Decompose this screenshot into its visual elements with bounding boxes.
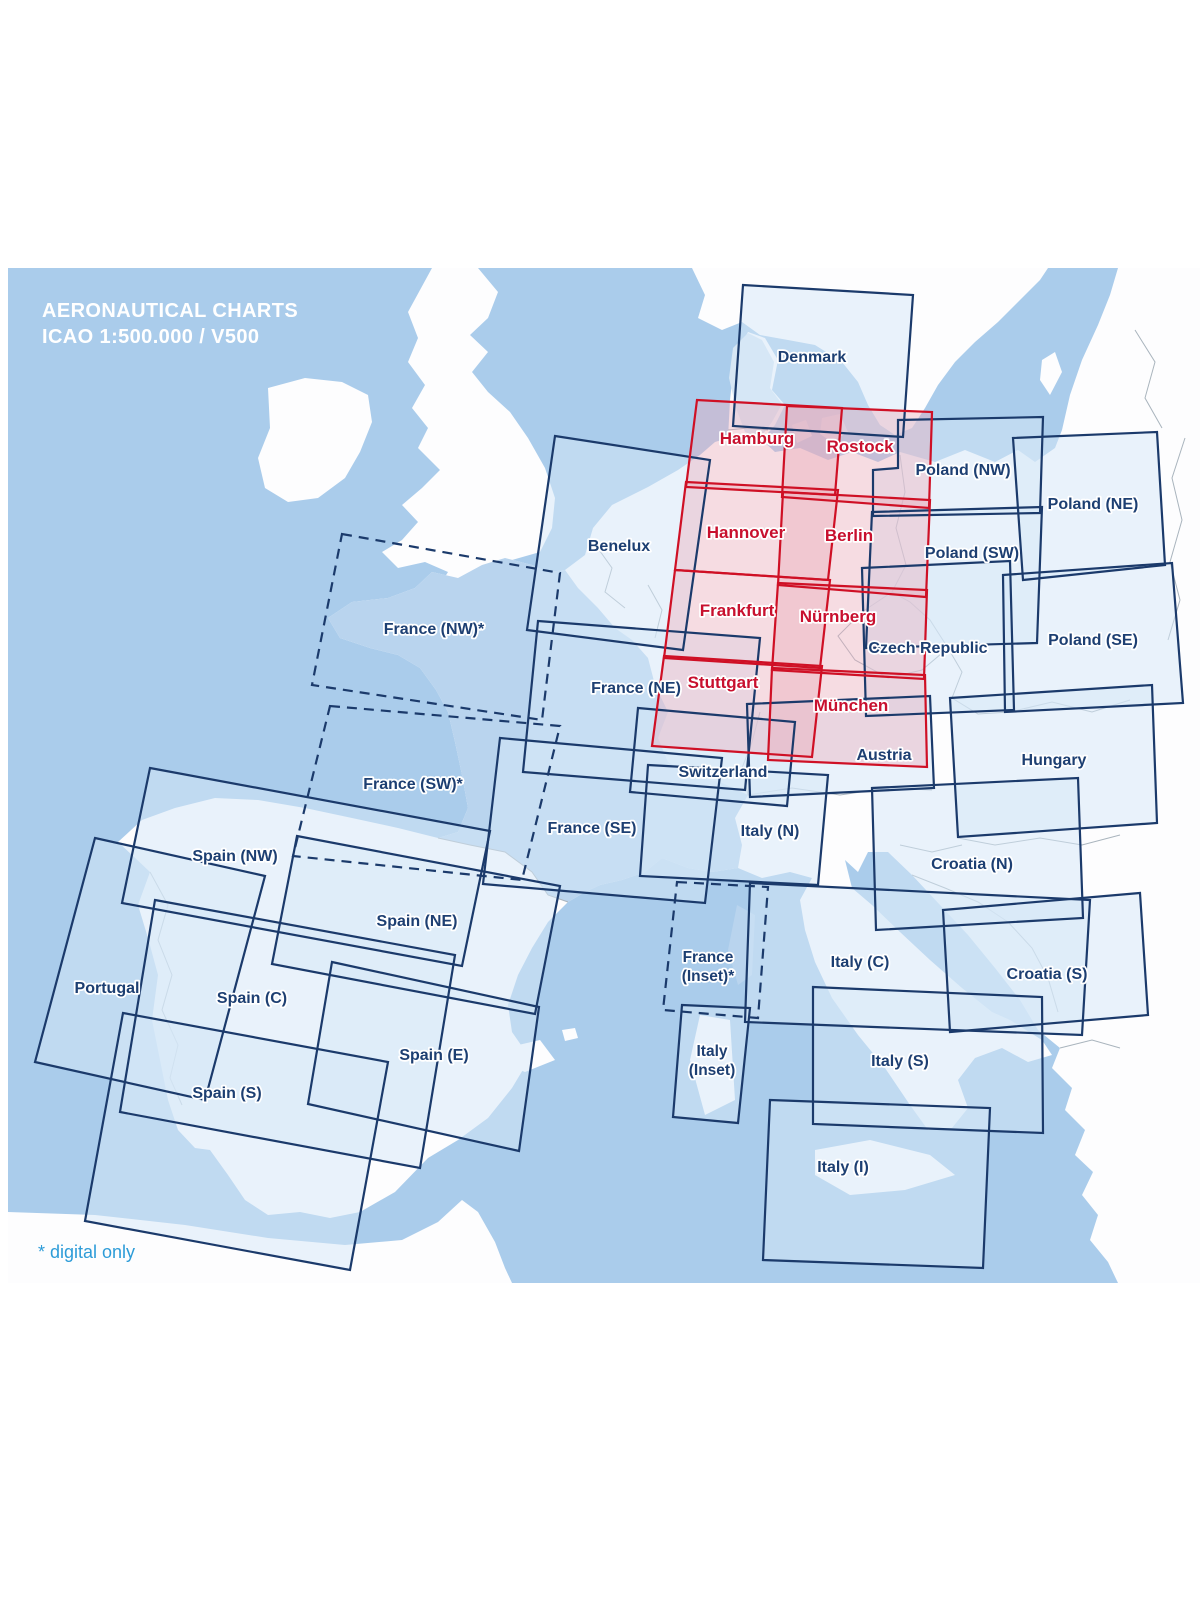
page-title-line2: ICAO 1:500.000 / V500 (42, 324, 298, 350)
chart-label-france-nw: France (NW)* (384, 621, 485, 638)
chart-label-italy-i: Italy (I) (817, 1159, 869, 1176)
chart-label-croatia-n: Croatia (N) (931, 856, 1013, 873)
page-title-line1: AERONAUTICAL CHARTS (42, 298, 298, 324)
chart-label-czech-republic: Czech Republic (868, 640, 987, 657)
chart-label-italy-s: Italy (S) (871, 1053, 929, 1070)
chart-label-switzerland: Switzerland (679, 764, 768, 781)
chart-label-rostock: Rostock (826, 437, 894, 456)
chart-label-benelux: Benelux (588, 538, 650, 555)
chart-label-frankfurt: Frankfurt (700, 601, 775, 620)
chart-label-poland-nw: Poland (NW) (915, 462, 1010, 479)
chart-label-france-sw: France (SW)* (363, 776, 463, 793)
chart-label-croatia-s: Croatia (S) (1007, 966, 1088, 983)
chart-label-stuttgart: Stuttgart (688, 673, 759, 692)
chart-label-hungary: Hungary (1022, 752, 1087, 769)
chart-label-poland-se: Poland (SE) (1048, 632, 1138, 649)
chart-label-spain-nw: Spain (NW) (192, 848, 277, 865)
chart-label-line1: France (683, 949, 734, 966)
chart-label-nurnberg: Nürnberg (800, 607, 877, 626)
chart-label-austria: Austria (856, 747, 911, 764)
chart-label-line1: Italy (696, 1043, 727, 1060)
chart-label-spain-ne: Spain (NE) (377, 913, 458, 930)
chart-label-hannover: Hannover (707, 523, 786, 542)
chart-label-hamburg: Hamburg (720, 429, 795, 448)
chart-label-france-se: France (SE) (548, 820, 637, 837)
chart-area-italy-i (763, 1100, 990, 1268)
chart-label-spain-s: Spain (S) (192, 1085, 261, 1102)
digital-only-footnote: * digital only (38, 1242, 135, 1263)
chart-label-line2: (Inset) (689, 1062, 736, 1079)
chart-label-italy-n: Italy (N) (741, 823, 800, 840)
chart-label-poland-sw: Poland (SW) (925, 545, 1019, 562)
chart-label-spain-c: Spain (C) (217, 990, 287, 1007)
chart-label-line2: (Inset)* (682, 968, 736, 985)
chart-label-portugal: Portugal (75, 980, 140, 997)
chart-label-munchen: München (814, 696, 889, 715)
chart-label-france-ne: France (NE) (591, 680, 681, 697)
chart-label-poland-ne: Poland (NE) (1048, 496, 1139, 513)
page-title: AERONAUTICAL CHARTS ICAO 1:500.000 / V50… (42, 298, 298, 350)
europe-coverage-map: DenmarkPoland (NW)Poland (NE)Poland (SW)… (0, 0, 1200, 1600)
chart-label-italy-c: Italy (C) (831, 954, 890, 971)
aeronautical-charts-coverage-page: DenmarkPoland (NW)Poland (NE)Poland (SW)… (0, 0, 1200, 1600)
chart-label-denmark: Denmark (778, 349, 847, 366)
chart-label-spain-e: Spain (E) (399, 1047, 468, 1064)
chart-label-berlin: Berlin (825, 526, 873, 545)
